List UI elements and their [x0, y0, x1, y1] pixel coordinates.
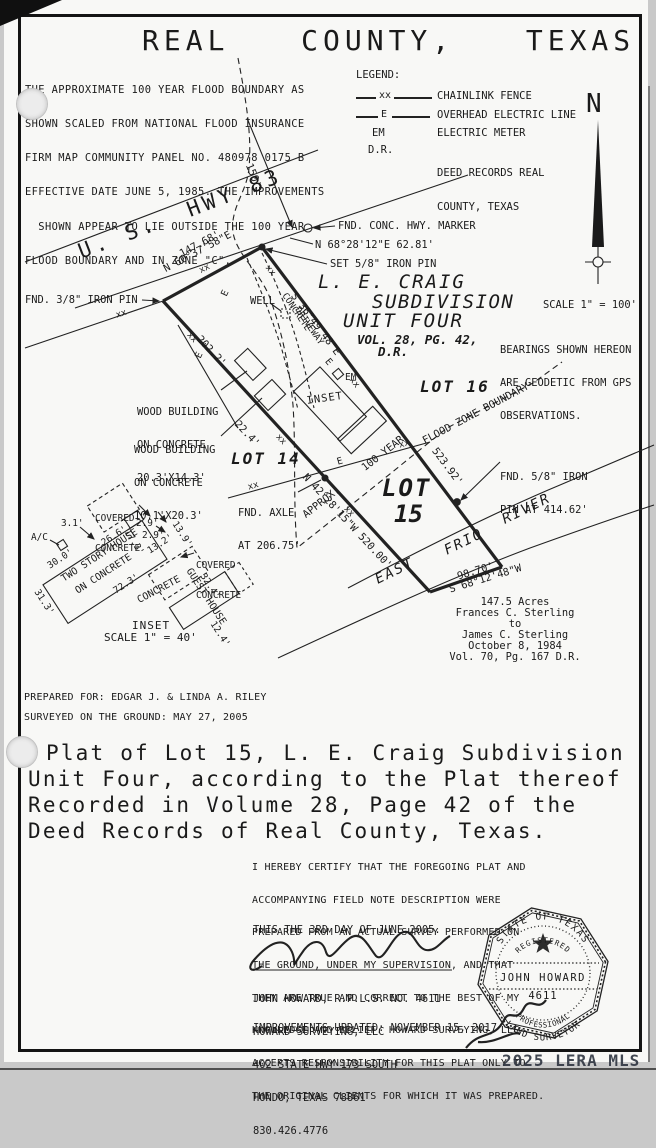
- inset-dim-29a: 2.9': [136, 519, 159, 529]
- north-arrow-icon: [585, 120, 611, 284]
- subdivision-dr-label: D.R.: [378, 345, 408, 359]
- wood-building-2-label: WOOD BUILDING ON CONCRETE 10.1'X20.3': [134, 423, 215, 533]
- surveyed-label: SURVEYED ON THE GROUND: MAY 27, 2005: [24, 713, 248, 724]
- deed-reference-block: 147.5 Acres Frances C. Sterling to James…: [417, 597, 613, 663]
- wood-building-1: [235, 348, 267, 380]
- fnd58-line: FND. 5/8" IRON: [500, 472, 588, 483]
- fnd58-leader: [461, 462, 500, 500]
- wood2-line: ON CONCRETE: [134, 478, 215, 489]
- plat-title-line-1: Plat of Lot 15, L. E. Craig Subdivision: [46, 742, 625, 765]
- watermark: 2025 LERA MLS: [502, 1051, 640, 1070]
- scanned-survey-plat: { "page": { "title": "REAL COUNTY, TEXAS…: [0, 0, 656, 1080]
- fnd-iron-pin-point: [454, 499, 461, 506]
- fnd38-leader: [142, 300, 159, 301]
- lot14-label: LOT 14: [231, 450, 301, 467]
- surveyor-block: JOHN HOWARD, R.P.L.S. NO. 4611 HOWARD SU…: [253, 972, 441, 1148]
- certification-line: I HEREBY CERTIFY THAT THE FOREGOING PLAT…: [252, 863, 544, 874]
- lot15-label: LOT: [382, 476, 431, 502]
- fnd-conc-marker-label: FND. CONC. HWY. MARKER: [338, 221, 476, 232]
- punch-hole: [16, 88, 48, 120]
- certification-line: ACCOMPANYING FIELD NOTE DESCRIPTION WERE: [252, 896, 544, 907]
- inset-cc-line: COVERED: [196, 561, 241, 571]
- inset-leader: [181, 553, 194, 557]
- plat-title-line-4: Deed Records of Real County, Texas.: [28, 820, 548, 843]
- bearings-note-line: OBSERVATIONS.: [500, 411, 631, 422]
- wood2-line: WOOD BUILDING: [134, 445, 215, 456]
- bearings-note: BEARINGS SHOWN HEREON ARE GEODETIC FROM …: [500, 323, 631, 433]
- driveway-line: [247, 258, 298, 410]
- surveyor-phone: 830.426.4776: [253, 1126, 441, 1137]
- lot15-number: 15: [394, 502, 423, 528]
- deed-line: Vol. 70, Pg. 167 D.R.: [417, 652, 613, 663]
- improvements-updated-label: IMPROVEMENTS UPDATED: NOVEMBER 15, 2017: [253, 1023, 497, 1034]
- inset-ac-label: A/C: [31, 533, 48, 543]
- set-iron-pin-point: [259, 244, 265, 250]
- bearings-note-line: BEARINGS SHOWN HEREON: [500, 345, 631, 356]
- subdivision-name-1: L. E. CRAIG: [318, 272, 466, 293]
- bearing-6828-label: N 68°28'12"E 62.81': [315, 240, 434, 251]
- plat-title-line-3: Recorded in Volume 28, Page 42 of the: [28, 794, 577, 817]
- surveyor-name: JOHN HOWARD, R.P.L.S. NO. 4611: [253, 994, 441, 1005]
- fnd-axle-label: FND. AXLE AT 206.75': [238, 486, 301, 563]
- plat-title-line-2: Unit Four, according to the Plat thereof: [28, 768, 622, 791]
- punch-hole: [6, 736, 38, 768]
- guest-footprint: [338, 406, 387, 453]
- wood1-line: WOOD BUILDING: [137, 407, 218, 418]
- well-label: WELL: [250, 296, 275, 307]
- inset-cc-line: COVERED: [95, 514, 140, 524]
- surveyor-address: HONDO, TEXAS 78861: [253, 1093, 441, 1104]
- lot16-label: LOT 16: [420, 378, 490, 395]
- scale-label: SCALE 1" = 100': [543, 300, 637, 311]
- bearing-leader: [290, 238, 313, 244]
- certification-line: THE GROUND, UNDER MY SUPERVISION, AND TH…: [252, 961, 544, 972]
- fnd-38-pin-label: FND. 3/8" IRON PIN: [25, 295, 138, 306]
- set-pin-leader: [266, 249, 327, 264]
- inset-dim-31: 3.1': [61, 519, 84, 529]
- set-pin-label: SET 5/8" IRON PIN: [330, 259, 436, 270]
- subdivision-vol-label: VOL. 28, PG. 42,: [357, 333, 477, 347]
- subdivision-name-3: UNIT FOUR: [343, 311, 464, 332]
- prepared-for-label: PREPARED FOR: EDGAR J. & LINDA A. RILEY: [24, 693, 267, 704]
- electric-meter-box: [332, 368, 343, 379]
- fnd-axle-line: FND. AXLE: [238, 508, 301, 519]
- fnd-axle-line: AT 206.75': [238, 541, 301, 552]
- inset-scale-label: SCALE 1" = 40': [104, 632, 197, 644]
- fnd-axle-point: [322, 475, 328, 481]
- fence-line: [25, 301, 163, 348]
- certification-date-line: THIS THE 3RD DAY OF JUNE 2005.: [253, 925, 441, 936]
